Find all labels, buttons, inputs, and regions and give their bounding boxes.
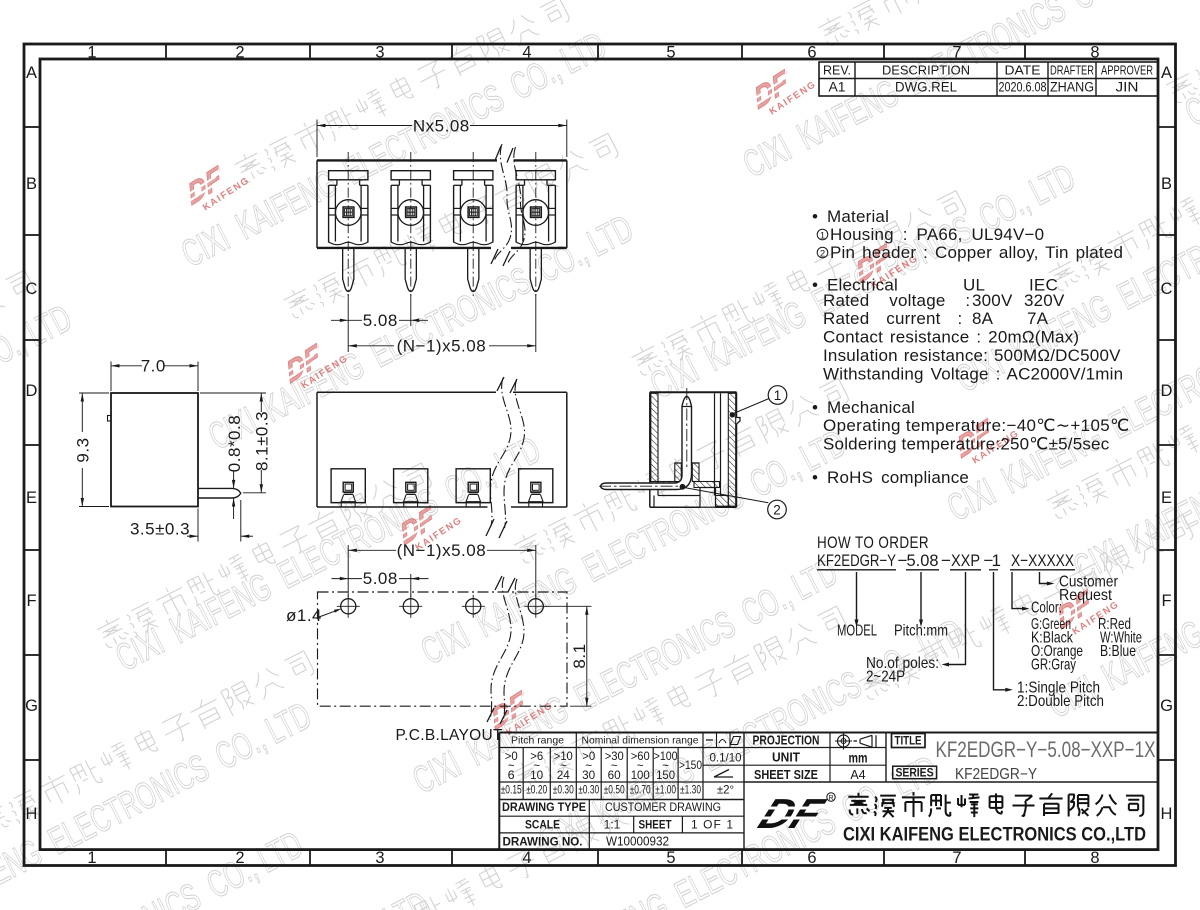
svg-text:CUSTOMER DRAWING: CUSTOMER DRAWING	[605, 800, 721, 814]
svg-text:HOW TO ORDER: HOW TO ORDER	[817, 533, 929, 552]
svg-text:mm: mm	[849, 750, 868, 766]
svg-text:5.08: 5.08	[363, 569, 398, 588]
svg-text:RoHS compliance: RoHS compliance	[827, 468, 969, 487]
svg-text:Insulation resistance: 500MΩ/D: Insulation resistance: 500MΩ/DC500V	[823, 346, 1121, 365]
svg-text:Rated voltage :: Rated voltage :	[823, 291, 970, 310]
svg-text:8: 8	[1090, 849, 1099, 867]
svg-text:(N−1)x5.08: (N−1)x5.08	[397, 541, 487, 560]
svg-text:F: F	[1161, 592, 1171, 610]
svg-text:XXP: XXP	[951, 551, 980, 570]
svg-text:Pitch:mm: Pitch:mm	[894, 623, 948, 640]
svg-text:Request: Request	[1059, 587, 1112, 604]
svg-text:Withstanding Voltage : AC2000V: Withstanding Voltage : AC2000V/1min	[823, 364, 1123, 383]
svg-text:5: 5	[666, 44, 675, 62]
svg-text:0.1/10: 0.1/10	[710, 751, 742, 765]
svg-text:±0.15: ±0.15	[501, 785, 522, 797]
svg-text:Soldering temperature:250℃±5/5: Soldering temperature:250℃±5/5sec	[823, 435, 1110, 454]
svg-text:H: H	[1161, 805, 1173, 823]
svg-text:4: 4	[522, 44, 531, 62]
svg-text:9.3: 9.3	[73, 437, 92, 462]
svg-text:C: C	[26, 280, 38, 298]
svg-text:ø1.4: ø1.4	[286, 606, 322, 625]
svg-text:8.1: 8.1	[570, 643, 589, 668]
svg-text:KF2EDGR−Y: KF2EDGR−Y	[817, 551, 896, 570]
svg-text:A1: A1	[829, 80, 846, 95]
svg-text:Color:: Color:	[1031, 600, 1062, 617]
svg-text:3: 3	[375, 44, 384, 62]
svg-text:A: A	[26, 64, 37, 82]
svg-text:UNIT: UNIT	[772, 751, 800, 765]
svg-text:150: 150	[656, 770, 675, 782]
svg-text:7.0: 7.0	[141, 356, 166, 375]
svg-text:2: 2	[235, 44, 244, 62]
svg-text:3: 3	[375, 849, 384, 867]
svg-text:1: 1	[820, 230, 825, 241]
svg-text:Nx5.08: Nx5.08	[413, 117, 470, 136]
svg-text:Material: Material	[827, 207, 889, 226]
svg-text:B: B	[1161, 175, 1172, 193]
svg-text:1 OF 1: 1 OF 1	[691, 817, 733, 831]
svg-text:2:Double Pitch: 2:Double Pitch	[1017, 693, 1104, 710]
svg-text:SHEET: SHEET	[639, 817, 673, 831]
svg-text:2: 2	[820, 248, 825, 259]
svg-text:2020.6.08: 2020.6.08	[999, 80, 1047, 95]
svg-text:SERIES: SERIES	[896, 766, 934, 780]
svg-text:±1.00: ±1.00	[655, 785, 676, 797]
svg-text:30: 30	[582, 770, 595, 782]
svg-text:1: 1	[87, 44, 96, 62]
svg-text:GR:Gray: GR:Gray	[1031, 657, 1076, 674]
svg-text:MODEL: MODEL	[837, 623, 877, 640]
svg-text:8.1±0.3: 8.1±0.3	[252, 411, 271, 471]
svg-text:100: 100	[631, 770, 650, 782]
svg-text:Pin header : Copper alloy, Tin: Pin header : Copper alloy, Tin plated	[830, 243, 1123, 262]
svg-text:6: 6	[807, 44, 816, 62]
svg-text:0.8*0.8: 0.8*0.8	[225, 415, 244, 472]
svg-text:A4: A4	[850, 768, 865, 782]
svg-text:2: 2	[773, 503, 781, 518]
svg-text:±0.30: ±0.30	[553, 785, 574, 797]
svg-text:7: 7	[952, 849, 961, 867]
svg-text:8: 8	[1090, 44, 1099, 62]
svg-text:DWG.REL: DWG.REL	[895, 80, 957, 95]
svg-text:(N−1)x5.08: (N−1)x5.08	[397, 336, 487, 355]
svg-text:5.08: 5.08	[907, 551, 939, 570]
svg-text:•: •	[812, 398, 818, 417]
svg-text:APPROVER: APPROVER	[1101, 64, 1153, 78]
svg-text:REV.: REV.	[823, 64, 851, 78]
svg-text:E: E	[1161, 489, 1172, 507]
svg-text:2~24P: 2~24P	[866, 669, 905, 686]
svg-text:±2°: ±2°	[717, 785, 734, 797]
svg-text:PROJECTION: PROJECTION	[753, 734, 820, 748]
svg-text:300V: 300V	[972, 291, 1013, 310]
svg-text:Contact resistance : 20mΩ(Max): Contact resistance : 20mΩ(Max)	[823, 327, 1079, 346]
svg-text:B: B	[26, 175, 37, 193]
svg-text:P.C.B.LAYOUT: P.C.B.LAYOUT	[396, 727, 503, 744]
svg-text:ZHANG: ZHANG	[1050, 80, 1094, 95]
svg-text:4: 4	[522, 849, 531, 867]
svg-text:10: 10	[530, 770, 543, 782]
svg-text:±0.20: ±0.20	[526, 785, 547, 797]
svg-text:•: •	[812, 276, 818, 295]
svg-text:320V: 320V	[1024, 291, 1065, 310]
svg-text:DRAWING NO.: DRAWING NO.	[503, 834, 583, 848]
svg-text:6: 6	[508, 770, 515, 782]
svg-text:Nominal dimension range: Nominal dimension range	[582, 735, 699, 747]
svg-text:24: 24	[557, 770, 571, 782]
svg-text:H: H	[26, 805, 38, 823]
svg-text:KF2EDGR−Y−5.08−XXP−1X: KF2EDGR−Y−5.08−XXP−1X	[936, 737, 1156, 762]
svg-text:7A: 7A	[1027, 309, 1049, 328]
svg-text:±1.30: ±1.30	[680, 785, 701, 797]
svg-text:A: A	[1161, 64, 1172, 82]
svg-text:1:1: 1:1	[604, 817, 621, 831]
svg-text:D: D	[1161, 382, 1173, 400]
svg-text:±0.50: ±0.50	[604, 785, 625, 797]
svg-text:W10000932: W10000932	[606, 834, 669, 848]
svg-text:B:Blue: B:Blue	[1100, 643, 1136, 660]
svg-text:3.5±0.3: 3.5±0.3	[130, 520, 190, 539]
svg-text:JIN: JIN	[1116, 80, 1139, 95]
svg-text:G: G	[25, 697, 38, 715]
svg-text:Operating temperature:−40℃∼+10: Operating temperature:−40℃∼+105℃	[823, 416, 1130, 435]
svg-text:TITLE: TITLE	[895, 734, 922, 748]
svg-text:Mechanical: Mechanical	[827, 398, 915, 417]
svg-text:Housing : PA66, UL94V−0: Housing : PA66, UL94V−0	[830, 225, 1044, 244]
svg-text:1: 1	[992, 551, 1001, 570]
svg-text:±0.30: ±0.30	[578, 785, 599, 797]
svg-text:SHEET SIZE: SHEET SIZE	[754, 768, 818, 782]
svg-text:7: 7	[952, 44, 961, 62]
svg-text:•: •	[812, 468, 818, 487]
svg-text:1: 1	[87, 849, 96, 867]
svg-text:C: C	[1161, 280, 1173, 298]
svg-text:6: 6	[807, 849, 816, 867]
svg-text:5: 5	[666, 849, 675, 867]
svg-text:Pitch range: Pitch range	[511, 735, 564, 747]
svg-text:•: •	[812, 207, 818, 226]
svg-text:CIXI KAIFENG ELECTRONICS CO.,L: CIXI KAIFENG ELECTRONICS CO.,LTD	[843, 825, 1146, 846]
svg-text:60: 60	[608, 770, 621, 782]
svg-text:X−XXXXX: X−XXXXX	[1011, 551, 1074, 570]
svg-text:>150: >150	[679, 760, 702, 772]
svg-text:8A: 8A	[972, 309, 994, 328]
svg-text:R: R	[828, 795, 833, 802]
svg-text:±0.70: ±0.70	[630, 785, 651, 797]
svg-text:DRAFTER: DRAFTER	[1050, 64, 1094, 78]
svg-text:KF2EDGR−Y: KF2EDGR−Y	[955, 766, 1037, 783]
svg-text:F: F	[26, 592, 36, 610]
svg-text:SCALE: SCALE	[525, 817, 560, 831]
svg-text:DESCRIPTION: DESCRIPTION	[882, 64, 970, 78]
svg-text:Rated current :: Rated current :	[823, 309, 962, 328]
svg-text:G: G	[1160, 697, 1173, 715]
svg-text:DATE: DATE	[1005, 64, 1041, 78]
svg-text:E: E	[26, 489, 37, 507]
svg-text:2: 2	[235, 849, 244, 867]
svg-text:D: D	[26, 382, 38, 400]
svg-text:DRAWING TYPE: DRAWING TYPE	[502, 800, 586, 814]
svg-text:−: −	[941, 551, 951, 570]
svg-text:1: 1	[774, 388, 782, 403]
svg-text:5.08: 5.08	[363, 311, 398, 330]
